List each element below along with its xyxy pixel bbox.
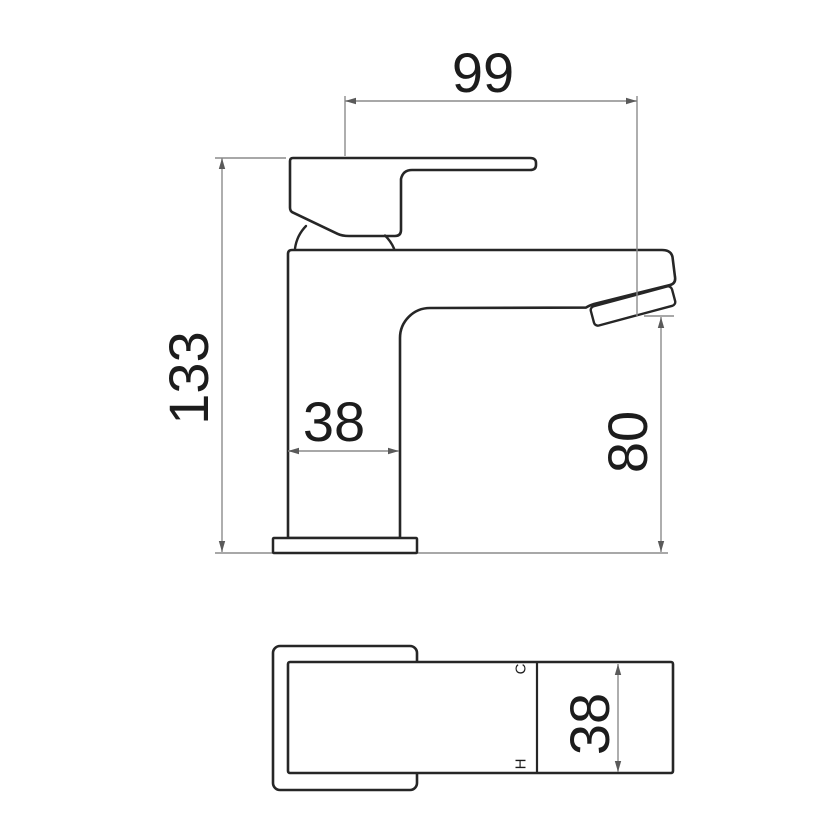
plan-view: 38 C H <box>273 646 673 790</box>
dim-label-outlet-height: 80 <box>596 411 659 473</box>
dim-label-spout-reach: 99 <box>452 41 514 104</box>
faucet-technical-drawing: 99 133 38 80 38 C H <box>0 0 840 840</box>
dim-label-overall-height: 133 <box>157 331 220 424</box>
technical-drawing-page: 99 133 38 80 38 C H <box>0 0 840 840</box>
cold-port-label: C <box>513 663 530 674</box>
hot-port-label: H <box>513 759 530 770</box>
dim-label-body-depth: 38 <box>558 693 621 755</box>
dim-label-body-width: 38 <box>303 390 365 453</box>
base-plate-outline <box>273 538 417 553</box>
